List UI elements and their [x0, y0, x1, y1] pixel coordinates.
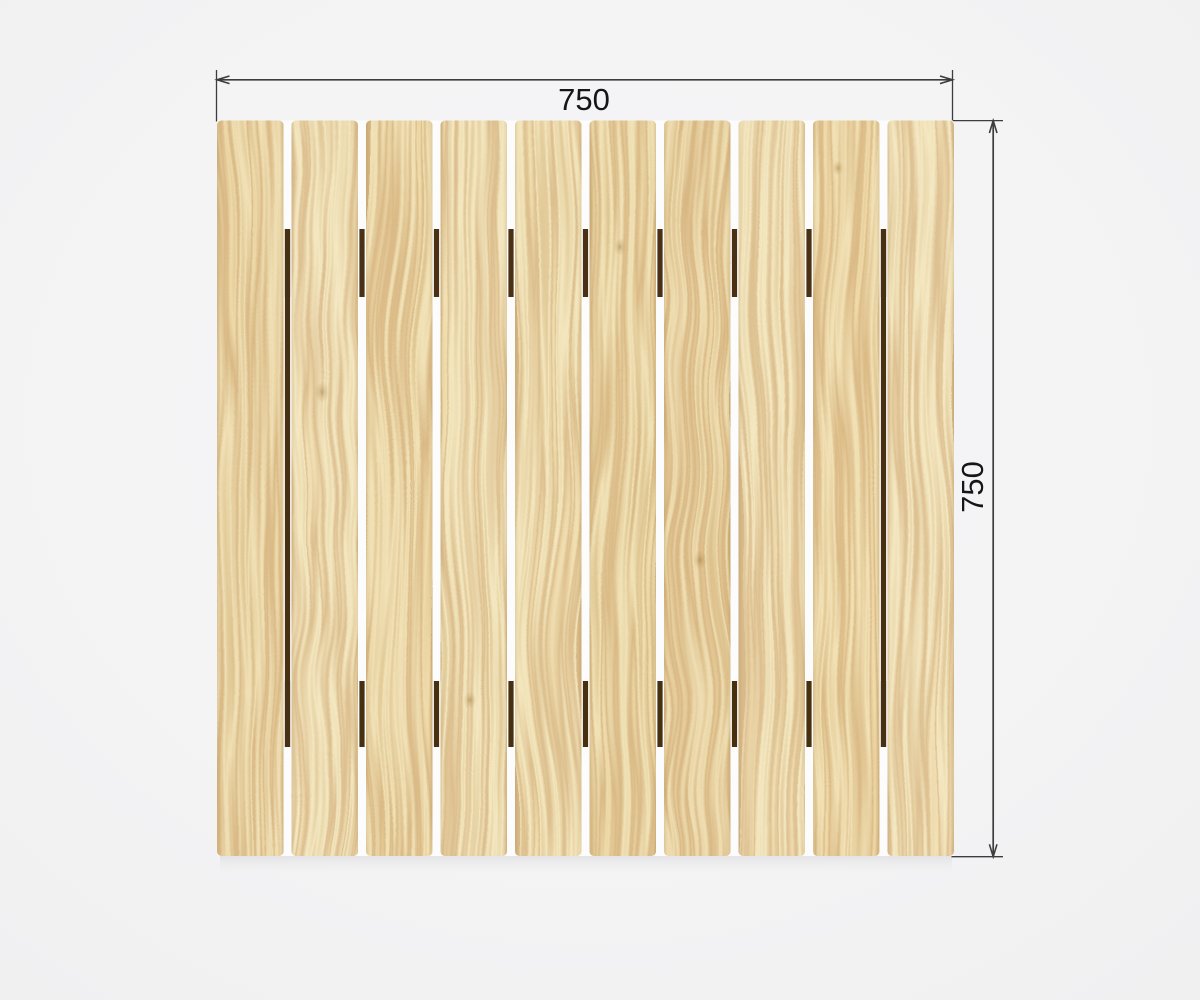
svg-text:750: 750 [955, 461, 990, 513]
svg-text:750: 750 [558, 82, 610, 117]
